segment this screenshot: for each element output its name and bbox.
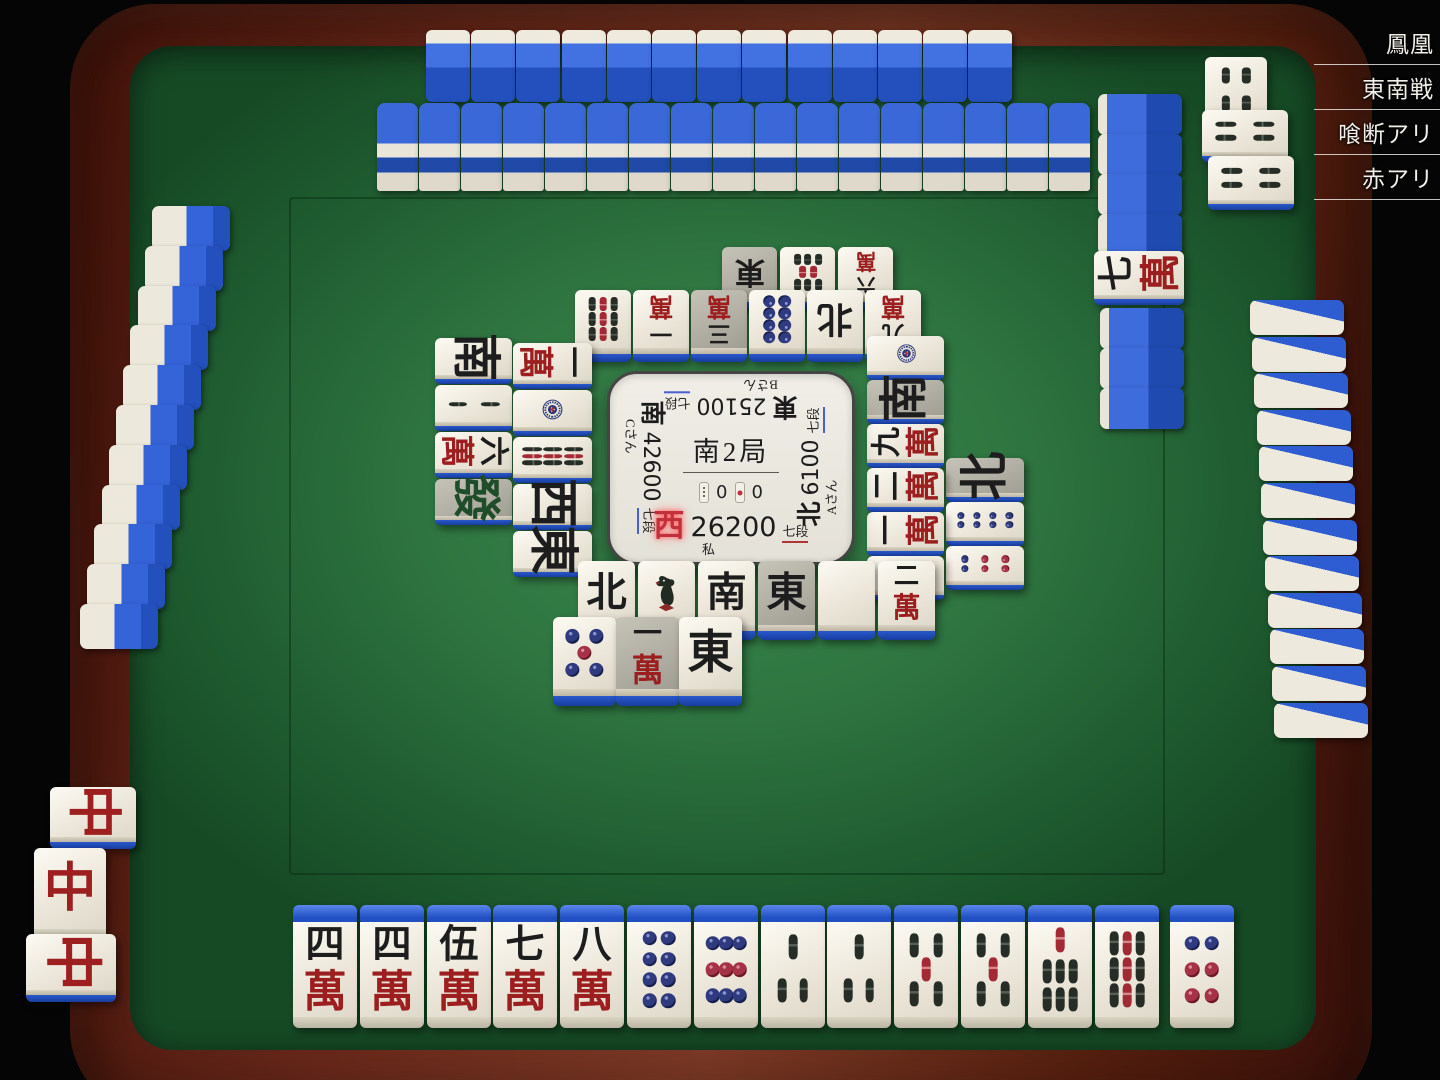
honor-glyph: 東 bbox=[727, 251, 772, 293]
wall-tile bbox=[1007, 103, 1048, 191]
self-meld-tile-chun: 中 bbox=[26, 934, 116, 1002]
man-glyph: 九萬 bbox=[872, 428, 939, 455]
man-glyph: 六萬 bbox=[843, 251, 888, 293]
hand-tile-7m[interactable]: 七萬 bbox=[493, 905, 557, 1028]
left-player-hand-tile bbox=[152, 206, 230, 251]
pond-tile-self bbox=[818, 561, 875, 640]
top-player-hand-tile bbox=[833, 30, 877, 102]
pond-tile-self: 東 bbox=[758, 561, 815, 640]
right-meld-tile-4s bbox=[1208, 156, 1294, 210]
pond-tile-self: 二萬 bbox=[878, 561, 935, 640]
top-player-hand-tile bbox=[516, 30, 560, 102]
hand-tile-7s[interactable] bbox=[1028, 905, 1092, 1028]
right-player-hand-tile bbox=[1268, 593, 1362, 628]
hand-tile-3s[interactable] bbox=[827, 905, 891, 1028]
wall-tile bbox=[755, 103, 796, 191]
honor-glyph: 東 bbox=[763, 565, 810, 621]
honor-glyph: 中 bbox=[31, 938, 111, 986]
wall-tile bbox=[503, 103, 544, 191]
right-meld-tile-4s bbox=[1202, 110, 1288, 162]
pond-tile-right: 南 bbox=[867, 380, 944, 424]
hand-tile-4m[interactable]: 四萬 bbox=[293, 905, 357, 1028]
wall-tile bbox=[587, 103, 628, 191]
left-player-hand-tile bbox=[94, 524, 172, 569]
man-glyph: 二萬 bbox=[883, 565, 930, 621]
round-info: 南2局 0 0 bbox=[610, 430, 852, 503]
honor-glyph: 北 bbox=[583, 565, 630, 621]
right-player-hand-tile bbox=[1252, 337, 1346, 372]
man-glyph: 八萬 bbox=[565, 926, 619, 1013]
riichi-stick-icon bbox=[735, 482, 745, 503]
left-player-hand-tile bbox=[87, 564, 165, 609]
pond-tile-left: 六萬 bbox=[435, 432, 512, 478]
man-glyph: 七萬 bbox=[498, 926, 552, 1013]
pond-tile-left bbox=[513, 390, 592, 436]
wall-tile bbox=[671, 103, 712, 191]
left-player-hand-tile bbox=[123, 365, 201, 410]
right-player-hand-tile bbox=[1259, 446, 1353, 481]
score-self: 26200 bbox=[691, 512, 777, 543]
hand-tile-5m[interactable]: 伍萬 bbox=[427, 905, 491, 1028]
pond-tile-left: 發 bbox=[435, 479, 512, 525]
center-score-panel: 東 25100 七段 Bさん 南 42600 七段 Cさん 北 6100 七段 … bbox=[607, 371, 855, 565]
wind-indicator-left: 南 bbox=[639, 400, 664, 425]
pond-tile-left: 一萬 bbox=[513, 343, 592, 389]
top-player-hand-tile bbox=[562, 30, 606, 102]
top-player-hand-tile bbox=[471, 30, 515, 102]
right-player-hand-tile bbox=[1274, 703, 1368, 738]
right-player-hand-tile bbox=[1250, 300, 1344, 335]
honor-glyph: 東 bbox=[684, 621, 737, 685]
hand-tile-5s[interactable] bbox=[961, 905, 1025, 1028]
left-player-hand-tile bbox=[116, 405, 194, 450]
wall-tile bbox=[1098, 134, 1182, 175]
pond-tile-right: 九萬 bbox=[867, 424, 944, 468]
player-name-self: 私 bbox=[702, 543, 715, 557]
man-glyph: 七萬 bbox=[1099, 255, 1179, 291]
pond-tile-top: 北 bbox=[807, 290, 863, 362]
honor-glyph: 南 bbox=[440, 342, 507, 371]
pond-tile-right: 一萬 bbox=[867, 512, 944, 556]
drawn-tile-6p[interactable] bbox=[1170, 905, 1234, 1028]
pond-tile-top: 三萬 bbox=[691, 290, 747, 362]
wall-tile bbox=[1100, 388, 1184, 429]
one-pin-medallion bbox=[881, 344, 931, 364]
pond-tile-left bbox=[435, 385, 512, 431]
pond-tile-top bbox=[749, 290, 805, 362]
wind-indicator-self: 西 bbox=[654, 510, 685, 541]
pond-tile-right bbox=[946, 546, 1024, 590]
rank-top: 七段 bbox=[664, 391, 690, 413]
player-info-self: 西 26200 七段 私 bbox=[610, 510, 852, 557]
right-player-hand-tile bbox=[1270, 629, 1364, 664]
right-player-hand-tile bbox=[1254, 373, 1348, 408]
man-glyph: 六萬 bbox=[440, 436, 507, 465]
top-player-hand-tile bbox=[923, 30, 967, 102]
pond-tile-top: 一萬 bbox=[633, 290, 689, 362]
mahjong-table-screen: 七萬東六萬一萬三萬北九萬南六萬發一萬 西東 南九萬二萬一萬 北北 南東二萬一萬東… bbox=[0, 0, 1440, 1080]
hand-tile-3s[interactable] bbox=[761, 905, 825, 1028]
hand-tile-8p[interactable] bbox=[627, 905, 691, 1028]
self-meld-tile-chun: 中 bbox=[50, 787, 136, 849]
wall-tile bbox=[797, 103, 838, 191]
wall-tile bbox=[1049, 103, 1090, 191]
round-indicator: 南2局 bbox=[683, 430, 780, 473]
pond-tile-self: 東 bbox=[679, 617, 742, 706]
wall-tile bbox=[965, 103, 1006, 191]
right-player-hand-tile bbox=[1261, 483, 1355, 518]
wall-tile bbox=[1098, 94, 1182, 135]
honor-glyph: 北 bbox=[951, 462, 1019, 489]
honor-glyph: 北 bbox=[812, 294, 858, 344]
hand-tile-9p[interactable] bbox=[694, 905, 758, 1028]
wall-tile bbox=[419, 103, 460, 191]
man-glyph: 伍萬 bbox=[432, 926, 486, 1013]
one-pin-medallion bbox=[527, 398, 578, 419]
rule-label-game-type: 東南戦 bbox=[1314, 65, 1440, 110]
honor-glyph: 西 bbox=[518, 488, 587, 517]
man-glyph: 一萬 bbox=[638, 294, 684, 344]
wall-tile bbox=[1100, 308, 1184, 349]
top-player-hand-tile bbox=[426, 30, 470, 102]
hand-tile-8m[interactable]: 八萬 bbox=[560, 905, 624, 1028]
man-glyph: 四萬 bbox=[365, 926, 419, 1013]
left-player-hand-tile bbox=[145, 246, 223, 291]
pond-tile-self: 一萬 bbox=[616, 617, 679, 706]
hand-tile-4m[interactable]: 四萬 bbox=[360, 905, 424, 1028]
rank-self: 七段 bbox=[782, 521, 808, 543]
left-player-hand-tile bbox=[130, 325, 208, 370]
honor-glyph: 南 bbox=[703, 565, 750, 621]
pond-tile-right bbox=[946, 502, 1024, 546]
hand-tile-5s[interactable] bbox=[894, 905, 958, 1028]
top-player-hand-tile bbox=[742, 30, 786, 102]
pond-tile-left: 西 bbox=[513, 484, 592, 530]
score-top: 25100 bbox=[697, 392, 767, 417]
wall-tile bbox=[461, 103, 502, 191]
left-player-hand-tile bbox=[109, 445, 187, 490]
right-player-hand-tile bbox=[1265, 556, 1359, 591]
man-glyph: 一萬 bbox=[621, 621, 674, 685]
dora-indicator-tile: 七萬 bbox=[1094, 251, 1184, 305]
rule-label-kuitan: 喰断アリ bbox=[1314, 110, 1440, 155]
top-player-hand-tile bbox=[968, 30, 1012, 102]
wind-indicator-top: 東 bbox=[773, 393, 798, 418]
wall-tile bbox=[1098, 174, 1182, 215]
wall-tile bbox=[923, 103, 964, 191]
man-glyph: 四萬 bbox=[298, 926, 352, 1013]
pond-tile-self bbox=[553, 617, 616, 706]
honor-glyph: 中 bbox=[55, 791, 131, 833]
wall-tile bbox=[713, 103, 754, 191]
honba-count: 0 bbox=[716, 482, 727, 503]
man-glyph: 三萬 bbox=[696, 294, 742, 344]
honba-stick-icon bbox=[699, 482, 709, 503]
pond-tile-left: 南 bbox=[435, 338, 512, 384]
man-glyph: 一萬 bbox=[518, 347, 587, 376]
right-player-hand-tile bbox=[1263, 520, 1357, 555]
pond-tile-right: 北 bbox=[946, 458, 1024, 502]
man-glyph: 二萬 bbox=[872, 472, 939, 499]
pond-tile-right: 二萬 bbox=[867, 468, 944, 512]
player-name-top: Bさん bbox=[743, 377, 778, 391]
room-label: 鳳凰 bbox=[1314, 20, 1440, 65]
wall-tile bbox=[881, 103, 922, 191]
top-player-hand-tile bbox=[697, 30, 741, 102]
right-player-hand-tile bbox=[1272, 666, 1366, 701]
wall-tile bbox=[839, 103, 880, 191]
top-player-hand-tile bbox=[788, 30, 832, 102]
right-player-hand-tile bbox=[1257, 410, 1351, 445]
wall-tile bbox=[629, 103, 670, 191]
honor-glyph: 南 bbox=[872, 384, 939, 411]
honor-glyph: 發 bbox=[440, 483, 507, 512]
top-player-hand-tile bbox=[878, 30, 922, 102]
top-player-hand-tile bbox=[652, 30, 696, 102]
wall-tile bbox=[545, 103, 586, 191]
rule-label-aka: 赤アリ bbox=[1314, 155, 1440, 200]
wall-tile bbox=[377, 103, 418, 191]
wall-tile bbox=[1098, 214, 1182, 255]
one-sou-bird bbox=[653, 570, 680, 616]
wall-tile bbox=[1100, 348, 1184, 389]
left-player-hand-tile bbox=[80, 604, 158, 649]
honor-glyph: 中 bbox=[39, 852, 101, 925]
pond-tile-left bbox=[513, 437, 592, 483]
rules-info-panel: 鳳凰 東南戦 喰断アリ 赤アリ bbox=[1314, 20, 1440, 200]
top-player-hand-tile bbox=[607, 30, 651, 102]
hand-tile-9s[interactable] bbox=[1095, 905, 1159, 1028]
man-glyph: 一萬 bbox=[872, 516, 939, 543]
riichi-count: 0 bbox=[752, 482, 763, 503]
honor-glyph: 東 bbox=[518, 535, 587, 564]
